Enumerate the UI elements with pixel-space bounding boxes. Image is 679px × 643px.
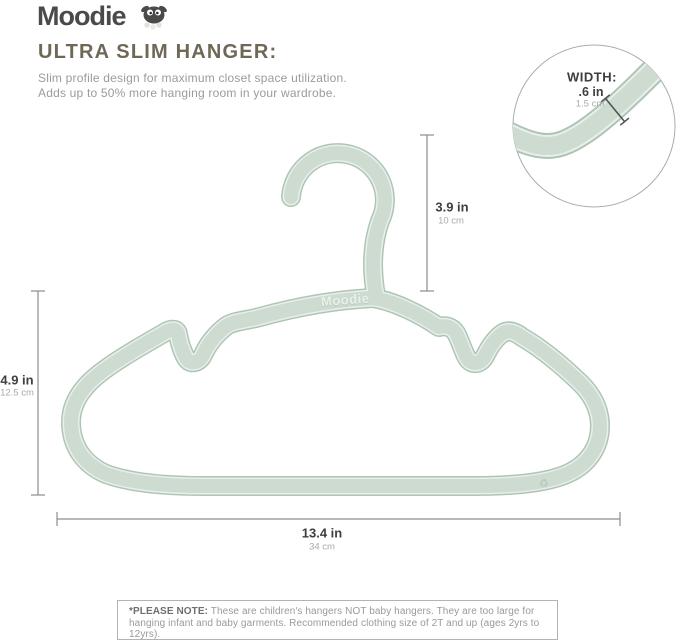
hanger-graphic: [71, 153, 600, 486]
dimension-line-hook-height: [420, 135, 434, 291]
hanger-height-cm: 12.5 cm: [0, 388, 34, 399]
inset-width-label: WIDTH:: [567, 70, 617, 85]
description-line-2: Adds up to 50% more hanging room in your…: [38, 86, 336, 100]
page-title: ULTRA SLIM HANGER:: [38, 41, 277, 64]
inset-width-value-in: .6 in: [578, 85, 603, 99]
inset-width-value-cm: 1.5 cm: [576, 99, 605, 110]
product-infographic: Moodie ULTRA SLIM HANGER: Slim profile d…: [0, 0, 679, 643]
dimension-line-hanger-width: [57, 512, 620, 526]
recycle-icon: ♻: [539, 477, 549, 490]
description-line-1: Slim profile design for maximum closet s…: [38, 71, 347, 85]
hook-height-in: 3.9 in: [435, 200, 468, 215]
hook-height-cm: 10 cm: [438, 216, 464, 227]
brand-logo-text: Moodie: [37, 1, 126, 32]
hanger-width-cm: 34 cm: [309, 542, 335, 553]
hanger-height-in: 4.9 in: [0, 373, 33, 388]
hanger-width-in: 13.4 in: [302, 526, 342, 541]
note-label: *PLEASE NOTE:: [129, 606, 208, 617]
sheep-icon: [138, 1, 170, 33]
note-text: *PLEASE NOTE: These are children's hange…: [129, 606, 547, 641]
note-box: *PLEASE NOTE: These are children's hange…: [117, 600, 558, 640]
